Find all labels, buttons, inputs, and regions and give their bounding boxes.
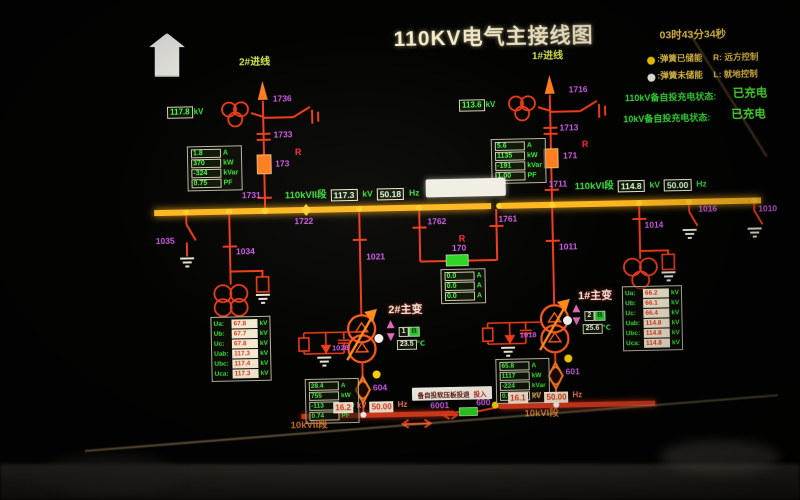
feeder1-pt-value: 113.6	[459, 99, 485, 111]
tx2-temperature: 23.5℃	[397, 332, 425, 350]
switch-label-1018: 1018	[520, 331, 537, 340]
pt-row-unit: kV	[260, 350, 268, 357]
bus110-II-pt-box: Ua:67.8kV Ub:67.7kV Uc:67.8kV Uab:117.3k…	[210, 316, 271, 382]
ground-icon	[683, 230, 697, 238]
tx2-symbol[interactable]	[348, 315, 376, 363]
switch-label-1010: 1010	[758, 204, 777, 214]
bus110-II-name: 110kVII段	[285, 190, 327, 201]
meas-value: 1135	[495, 151, 525, 161]
kv-unit: kV	[650, 181, 661, 191]
meas-value: 28.4	[309, 381, 339, 391]
meas-unit: kVar	[532, 382, 546, 389]
switch-label-1731: 1731	[242, 191, 261, 201]
meas-unit: A	[476, 272, 481, 279]
meas-unit: kW	[527, 152, 538, 159]
breaker-label-601: 601	[565, 367, 579, 377]
remote-flag-feeder2: R	[295, 148, 302, 158]
page-title: 110KV电气主接线图	[393, 24, 594, 51]
pt-row-label: Ub:	[625, 300, 641, 307]
feeder1-name: 1#进线	[532, 51, 563, 63]
switch-label-1761: 1761	[498, 215, 517, 225]
arrester-icon	[257, 277, 269, 292]
kv-unit: kV	[362, 190, 373, 200]
meas-value: 0.0	[445, 281, 475, 291]
ground-icon	[748, 228, 762, 236]
bus10-I-values: 16.1kV 50.00Hz	[508, 391, 582, 404]
feeder1-pt-voltage: 113.6kV	[459, 99, 496, 111]
pt-row-unit: kV	[260, 360, 268, 367]
pt-row-unit: kV	[260, 330, 268, 337]
auto110-status-label: 110kV备自投充电状态:	[625, 92, 717, 104]
pt-row-value: 67.8	[231, 319, 257, 329]
bus110-I-pt-box: Ua:66.2kV Ub:66.1kV Uc:66.4kV Uab:114.8k…	[622, 285, 683, 351]
pt-row-label: Uab:	[626, 320, 642, 327]
feeder2-measurements: 1.8A 370kW -324kVar 0.75PF	[187, 145, 243, 191]
disconnector-1716[interactable]	[580, 101, 597, 111]
photo-smudge	[660, 440, 780, 474]
auto10-status-label: 10kV备自投充电状态:	[623, 113, 710, 125]
switch-label-6001: 6001	[430, 401, 449, 411]
feeder1-pt-unit: kV	[485, 100, 495, 109]
feeder1-pt-icon	[509, 96, 535, 121]
bus2-pt-cluster-icon	[214, 285, 248, 317]
tap-raise-button-tx1[interactable]	[572, 304, 580, 312]
pt-row-value: 114.8	[643, 318, 669, 328]
breaker-label-600: 600	[476, 398, 490, 408]
hz-unit: Hz	[409, 189, 420, 199]
meas-value: 755	[309, 391, 339, 401]
hz-unit: Hz	[398, 401, 408, 412]
switch-label-1736: 1736	[273, 94, 292, 104]
breaker-label-604: 604	[373, 383, 387, 393]
overexposed-label-box	[426, 178, 506, 198]
pt-row-unit: kV	[259, 320, 267, 327]
meas-unit: A	[531, 362, 536, 369]
pt-row-label: Ubc:	[214, 361, 230, 368]
pt-row-value: 117.3	[232, 369, 258, 379]
tx2-temp-value: 23.5	[397, 340, 417, 350]
pt-row-value: 114.8	[644, 338, 670, 348]
tx1-temperature: 25.6℃	[582, 317, 610, 335]
tx1-symbol[interactable]	[541, 305, 569, 353]
pt-row-label: Uc:	[625, 310, 641, 317]
tx2-temp-unit: ℃	[417, 340, 426, 347]
tx1-name: 1#主变	[578, 290, 612, 303]
ground-icon	[501, 348, 515, 356]
meas-unit: kW	[532, 372, 542, 379]
bus10-I-hz: 50.00	[544, 392, 568, 404]
tap-lower-button-tx2[interactable]	[387, 333, 395, 341]
ground-icon	[662, 272, 676, 280]
pt-row-unit: kV	[672, 319, 680, 326]
tx2-measurements: 28.4A 755kW -113kVar 0.74PF	[305, 378, 360, 424]
switch-label-1713: 1713	[559, 123, 578, 133]
bus10-I-kv: 16.1	[508, 392, 528, 404]
switch-label-1035: 1035	[156, 237, 175, 247]
pt-row-label: Ua:	[213, 321, 229, 328]
meas-unit: kW	[223, 159, 234, 166]
bus1-pt-cluster-icon	[624, 258, 658, 289]
pt-row-value: 66.1	[643, 298, 669, 308]
remote-flag-feeder1: R	[582, 140, 589, 150]
feeder2-name: 2#进线	[239, 57, 270, 69]
ground-icon	[256, 295, 270, 303]
meas-value: 1117	[500, 371, 530, 381]
switch-label-1028: 1028	[332, 344, 349, 353]
meas-unit: A	[223, 150, 228, 157]
breaker-label-173: 173	[275, 159, 289, 169]
pt-row-unit: kV	[672, 329, 680, 336]
switch-label-1011: 1011	[559, 242, 578, 252]
node-label-1722: 1722	[294, 217, 313, 227]
breaker-label-170: 170	[452, 244, 466, 254]
pt-row-value: 66.4	[643, 308, 669, 318]
tie110-measurements: 0.0A 0.0A 0.0A	[440, 268, 486, 304]
pt-row-value: 117.3	[232, 349, 258, 359]
arrester-icon	[662, 254, 674, 269]
pt-row-unit: kV	[260, 340, 268, 347]
feeder1-arrow-icon	[544, 75, 554, 94]
pt-row-value: 114.8	[644, 328, 670, 338]
legend-spring-charged-label: :弹簧已储能	[657, 54, 703, 64]
switch-label-1716: 1716	[569, 85, 588, 95]
pt-row-unit: kV	[671, 309, 679, 316]
meas-value: 370	[191, 159, 221, 169]
earth-switch-1035[interactable]	[186, 215, 196, 256]
meas-unit: A	[477, 282, 482, 289]
legend-local-label: L: 就地控制	[713, 69, 758, 79]
bus10-II-values: 16.2kV 50.00Hz	[333, 401, 407, 414]
meas-unit: PF	[527, 172, 536, 179]
bus-110kv-II	[154, 203, 491, 216]
switch-label-1021: 1021	[366, 252, 385, 262]
bus110-I-hz: 50.00	[664, 179, 692, 192]
kv-unit: kV	[532, 392, 542, 403]
feeder2-pt-unit: kV	[194, 107, 204, 116]
pt-row-label: Uca:	[214, 371, 230, 378]
switch-label-1711: 1711	[549, 179, 568, 189]
legend-remote-label: R: 远方控制	[713, 52, 759, 62]
meas-unit: A	[341, 382, 346, 389]
auto110-status-value: 已充电	[733, 87, 768, 100]
meas-value: -191	[495, 161, 525, 171]
pt-row-value: 67.7	[232, 329, 258, 339]
switch-label-1016: 1016	[698, 204, 717, 214]
legend-spring-uncharged-label: :弹簧未储能	[657, 71, 703, 81]
pt-row-label: Uca:	[626, 340, 642, 347]
bus10-II-hz: 50.00	[370, 401, 394, 413]
tx1-hv-line	[545, 208, 561, 306]
bus-110kv-I	[499, 197, 761, 208]
tx2-hv-line	[352, 212, 368, 315]
spring-charged-dot-604	[373, 370, 381, 378]
pt-row-label: Uc:	[214, 341, 230, 348]
meas-value: 0.0	[445, 291, 475, 301]
bus-node-1722[interactable]	[301, 204, 311, 216]
photo-smudge	[40, 455, 180, 495]
pt-branch-1014[interactable]	[632, 205, 668, 259]
meas-value: -324	[191, 169, 221, 179]
switch-label-1733: 1733	[273, 130, 292, 140]
tx1-temp-value: 25.6	[583, 324, 603, 334]
scada-photo: 110KV电气主接线图 03时43分34秒 :弹簧已储能 R: 远方控制 :弹簧…	[0, 0, 800, 500]
pt-row-label: Uab:	[214, 351, 230, 358]
pt-row-unit: kV	[671, 299, 679, 306]
pt-row-value: 66.2	[643, 288, 669, 298]
bus110-II-hz: 50.18	[377, 188, 405, 201]
pt-row-unit: kV	[260, 370, 268, 377]
spring-uncharged-dot-tx2	[374, 334, 383, 343]
meas-unit: kW	[341, 392, 351, 399]
meas-unit: kVar	[223, 169, 238, 176]
breaker-170[interactable]	[446, 255, 468, 266]
meas-value: 5.6	[495, 141, 525, 151]
feeder2-pt-icon	[222, 102, 248, 127]
bus110-I-name: 110kVI段	[575, 181, 614, 192]
meas-unit: kVar	[527, 162, 542, 169]
breaker-600[interactable]	[459, 407, 477, 415]
pt-row-label: Ua:	[625, 290, 641, 297]
tap-raise-button-tx2[interactable]	[386, 320, 394, 328]
tap-lower-button-tx1[interactable]	[572, 317, 580, 325]
tx1-temp-unit: ℃	[602, 325, 611, 332]
feeder2-arrow-icon	[257, 81, 267, 100]
bus110-I-kv: 114.8	[618, 180, 645, 193]
ground-icon	[317, 357, 331, 365]
meas-value: 0.75	[191, 179, 221, 189]
spring-uncharged-dot-tx1	[563, 316, 572, 325]
meas-value: 0.0	[444, 271, 474, 281]
kv-unit: kV	[357, 402, 367, 413]
auto-transfer-note: 备自投软压板投退	[417, 388, 469, 399]
disconnector-1736[interactable]	[293, 107, 310, 117]
bus10-II-kv: 16.2	[333, 402, 353, 414]
meas-unit: PF	[223, 179, 232, 186]
earth-switch-1016[interactable]	[689, 205, 697, 226]
hz-unit: Hz	[696, 180, 707, 190]
pt-row-value: 117.4	[232, 359, 258, 369]
breaker-173[interactable]	[257, 155, 271, 174]
ground-icon	[180, 258, 194, 266]
meas-unit: A	[527, 142, 532, 149]
pt-row-label: Ub:	[214, 331, 230, 338]
spring-charged-dot-601	[564, 354, 572, 362]
meas-value: 1.8	[191, 149, 221, 159]
breaker-label-171: 171	[563, 151, 577, 161]
switch-label-1034: 1034	[236, 247, 255, 257]
pt-row-unit: kV	[672, 339, 680, 346]
pt-row-unit: kV	[671, 289, 679, 296]
feeder2-pt-value: 117.8	[167, 106, 193, 118]
meas-value: -224	[500, 381, 530, 391]
meas-value: 65.8	[499, 361, 529, 371]
bus110-II-kv: 117.3	[330, 189, 357, 202]
switch-label-1762: 1762	[427, 217, 446, 227]
switch-label-1014: 1014	[644, 220, 663, 230]
meas-unit: A	[477, 292, 482, 299]
pt-row-label: Ubc:	[626, 330, 642, 337]
pt-row-value: 67.8	[232, 339, 258, 349]
tx2-name: 2#主变	[388, 304, 422, 317]
breaker-601[interactable]	[548, 363, 563, 389]
hz-unit: Hz	[572, 391, 582, 402]
feeder2-pt-voltage: 117.8kV	[167, 106, 204, 118]
